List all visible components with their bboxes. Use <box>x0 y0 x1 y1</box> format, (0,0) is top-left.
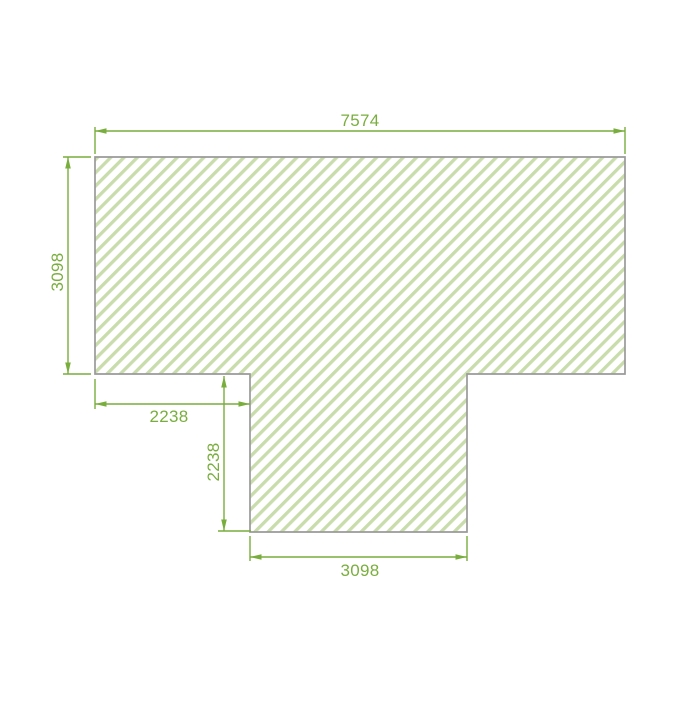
arrow-up-icon <box>65 157 71 169</box>
dimension-label-left-height: 3098 <box>48 252 67 291</box>
drawing-canvas: 7574 3098 2238 2238 <box>0 0 700 700</box>
dimension-top-width: 7574 <box>95 111 625 154</box>
arrow-right-icon <box>239 401 251 407</box>
arrow-down-icon <box>221 520 227 532</box>
arrow-left-icon <box>250 554 262 560</box>
arrow-left-icon <box>95 128 107 134</box>
dimension-label-top-width: 7574 <box>340 111 379 130</box>
dimension-label-bottom-width: 3098 <box>340 561 379 580</box>
dimension-label-notch-height: 2238 <box>204 442 223 481</box>
dimension-label-notch-width: 2238 <box>149 407 188 426</box>
dimension-bottom-width: 3098 <box>250 536 467 580</box>
arrow-right-icon <box>456 554 468 560</box>
dimension-left-height: 3098 <box>48 157 91 374</box>
arrow-up-icon <box>221 376 227 388</box>
dimension-notch-height: 2238 <box>204 376 251 531</box>
t-shape-profile <box>95 157 625 532</box>
dimension-notch-width: 2238 <box>95 379 250 426</box>
technical-drawing: 7574 3098 2238 2238 <box>0 0 700 700</box>
arrow-right-icon <box>614 128 626 134</box>
arrow-down-icon <box>65 363 71 375</box>
arrow-left-icon <box>95 401 107 407</box>
